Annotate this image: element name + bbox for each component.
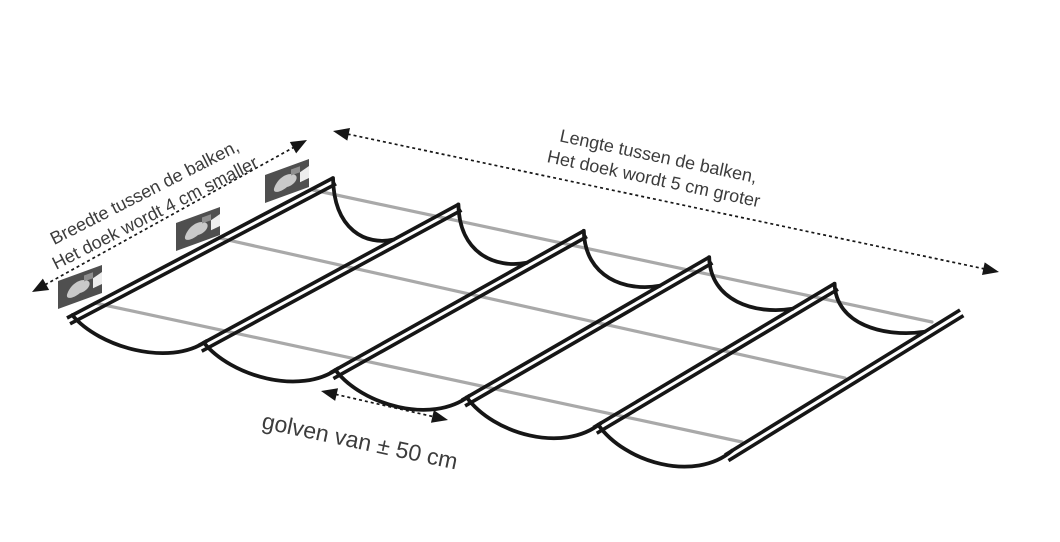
length-dimension-arrow-arrowhead-icon	[982, 262, 999, 275]
pulley-photo-icon	[176, 207, 220, 251]
fabric-wave-bottom-arc	[598, 425, 732, 467]
canopy-dimension-diagram: Breedte tussen de balken, Het doek wordt…	[0, 0, 1060, 542]
wave-canopy-drawing	[0, 0, 1060, 542]
fabric-wave-bottom-arc	[72, 315, 206, 353]
rail-line-inner	[728, 316, 963, 461]
canopy-rail	[593, 284, 838, 434]
fabric-wave-top-arc	[584, 231, 660, 287]
wave-dimension-arrow-dashed-line	[336, 394, 434, 416]
fabric-wave-top-arc	[835, 284, 925, 334]
canopy-rail	[725, 310, 963, 461]
fabric-wave-top-arc	[333, 178, 393, 241]
fabric-wave-bottom-arc	[204, 343, 338, 382]
wave-dimension-arrow	[321, 388, 448, 423]
rail-line-outer	[725, 310, 960, 455]
width-dimension-arrow-arrowhead-icon	[290, 140, 307, 153]
fabric-wave-bottom-arc	[467, 397, 601, 438]
wave-dimension-arrow-arrowhead-icon	[321, 388, 338, 401]
wave-dimension-arrow-arrowhead-icon	[431, 410, 448, 423]
length-dimension-arrow-arrowhead-icon	[333, 128, 350, 141]
fabric-wave-bottom-arc	[335, 370, 469, 410]
